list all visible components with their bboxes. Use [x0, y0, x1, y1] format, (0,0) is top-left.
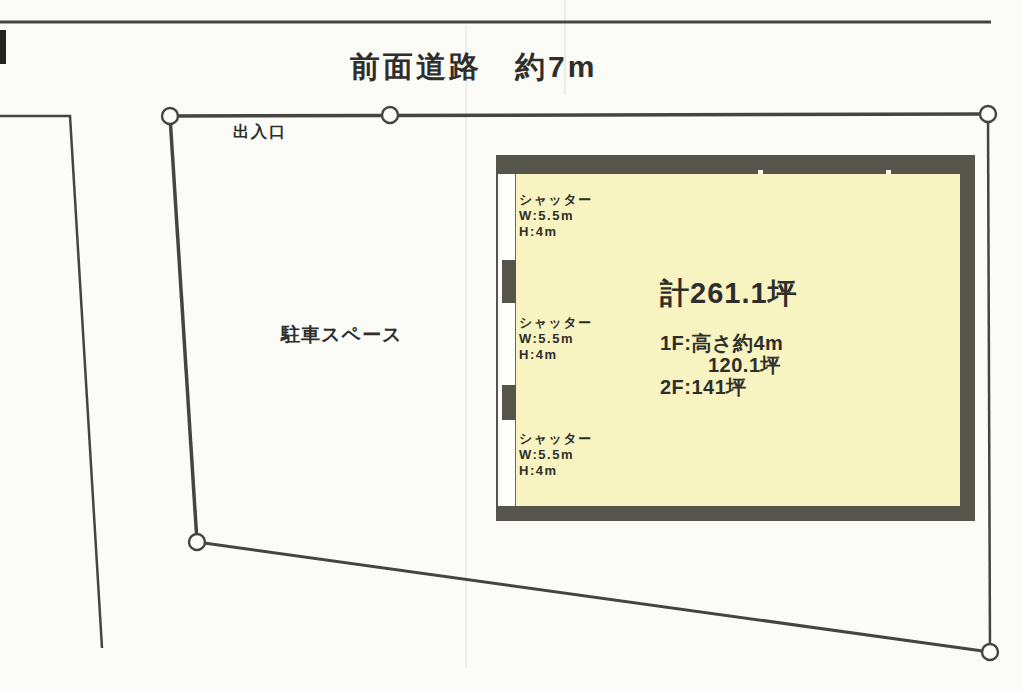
building-wall-left-outer-line: [496, 174, 498, 506]
building-wall-right: [960, 155, 975, 521]
survey-point-marker: [382, 107, 398, 123]
building-wall-top: [496, 155, 975, 174]
survey-point-marker: [189, 534, 205, 550]
top-wall-notch: [758, 170, 763, 174]
shutter-label-2: シャッター W:5.5m H:4m: [519, 315, 593, 363]
shutter-label-1: シャッター W:5.5m H:4m: [519, 192, 593, 240]
site-plan-page: 前面道路 約7m 出入口 駐車スペース シャッター W:5.5m H:4m シャ…: [0, 0, 1022, 691]
shutter-height: H:4m: [519, 224, 593, 240]
floor2-area-label: 2F:141坪: [660, 374, 747, 401]
road-label: 前面道路 約7m: [350, 47, 597, 88]
shutter-height: H:4m: [519, 463, 593, 479]
shutter-height: H:4m: [519, 347, 593, 363]
lot-bottom-edge: [197, 542, 990, 652]
building-wall-bottom: [496, 506, 975, 521]
building-wall-left: [496, 174, 516, 506]
entrance-label: 出入口: [233, 122, 287, 143]
shutter-width: W:5.5m: [519, 447, 593, 463]
wall-segment-between-shutters: [502, 385, 516, 420]
shutter-label-3: シャッター W:5.5m H:4m: [519, 431, 593, 479]
survey-point-marker: [162, 108, 178, 124]
neighbor-boundary-line: [0, 116, 102, 648]
shutter-width: W:5.5m: [519, 331, 593, 347]
shutter-title: シャッター: [519, 431, 593, 447]
survey-point-marker: [982, 644, 998, 660]
top-wall-notch: [886, 170, 891, 174]
wall-segment-between-shutters: [502, 260, 516, 303]
building-footprint: シャッター W:5.5m H:4m シャッター W:5.5m H:4m シャッタ…: [496, 155, 975, 521]
building-total-area-label: 計261.1坪: [660, 274, 798, 314]
shutter-title: シャッター: [519, 192, 593, 208]
lot-left-edge: [170, 116, 197, 542]
shutter-title: シャッター: [519, 315, 593, 331]
survey-point-marker: [980, 106, 996, 122]
scan-artifact-mark: [0, 30, 6, 64]
shutter-width: W:5.5m: [519, 208, 593, 224]
lot-top-edge: [170, 114, 988, 116]
parking-space-label: 駐車スペース: [281, 322, 402, 348]
lot-right-edge: [988, 114, 990, 652]
